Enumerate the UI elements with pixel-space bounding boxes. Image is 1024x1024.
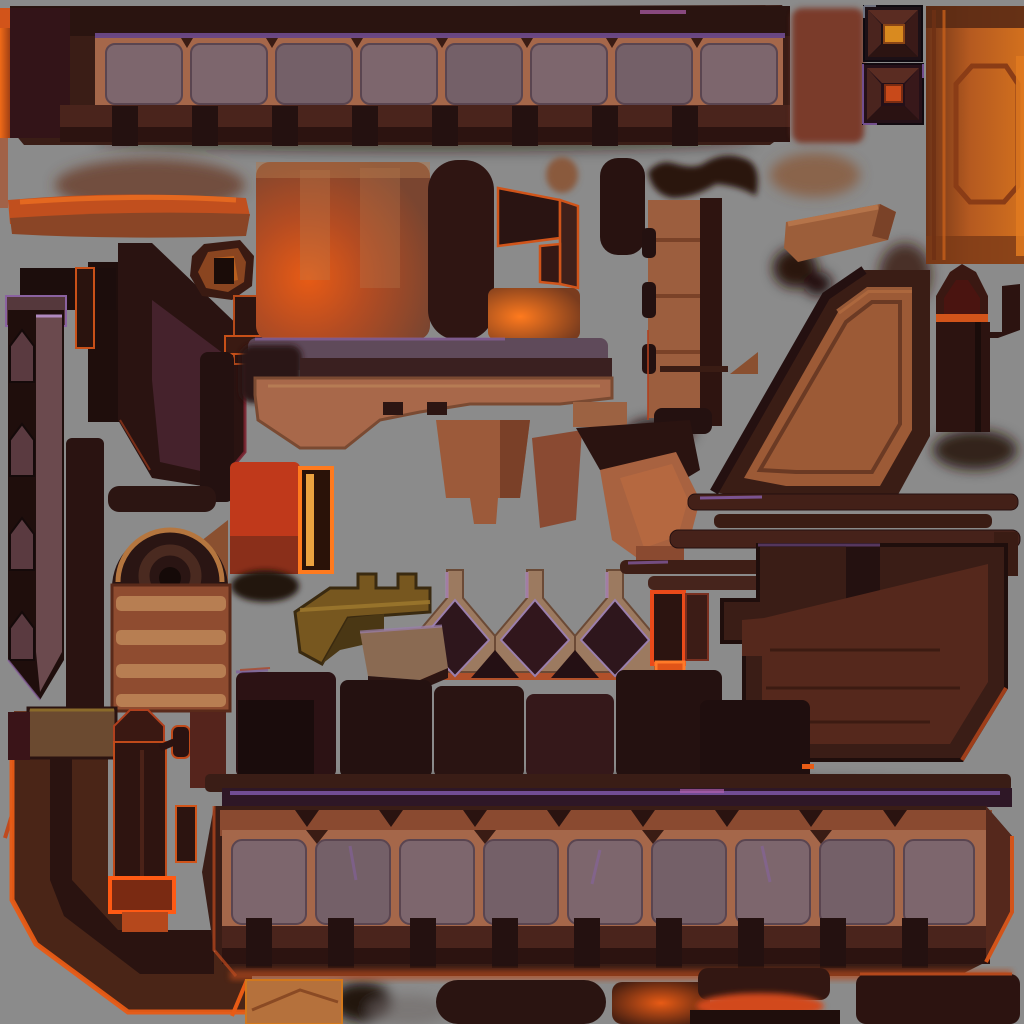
dark-pillar-mid bbox=[200, 352, 234, 502]
beam-brackets-bottom bbox=[246, 918, 928, 968]
texture-atlas bbox=[0, 0, 1024, 1024]
dark-capsule bbox=[600, 158, 645, 255]
octagon-nut bbox=[190, 240, 254, 300]
gem-button-gold bbox=[864, 6, 922, 61]
orange-plank bbox=[8, 194, 250, 237]
orange-column bbox=[926, 6, 1024, 264]
gem-core-ember bbox=[885, 85, 902, 102]
tan-blob bbox=[546, 157, 578, 193]
glow-box bbox=[488, 288, 580, 340]
glow-slab bbox=[256, 162, 430, 340]
striped-crate bbox=[112, 585, 230, 711]
bottom-stone-beam bbox=[202, 774, 1012, 980]
top-stone-beam bbox=[10, 5, 790, 146]
gem-core-gold bbox=[884, 25, 904, 43]
under-strip-right-block bbox=[856, 974, 1020, 1024]
under-strip-pill bbox=[436, 980, 606, 1024]
glowing-stick bbox=[300, 468, 332, 572]
dark-pill bbox=[428, 160, 494, 340]
crown-diamonds bbox=[415, 570, 655, 680]
beam-stone-panels-bottom bbox=[232, 840, 974, 924]
segmented-column bbox=[642, 198, 722, 434]
gem-button-ember bbox=[863, 64, 923, 124]
red-block bbox=[792, 8, 864, 143]
spike-strip bbox=[6, 296, 66, 700]
under-strip-ember-disc bbox=[690, 968, 840, 1024]
ember-block-shade bbox=[230, 536, 300, 574]
ember-block-shadow bbox=[231, 570, 299, 602]
purple-rail bbox=[95, 33, 785, 38]
atlas-canvas bbox=[0, 0, 1024, 1024]
under-strip-box bbox=[232, 980, 342, 1024]
